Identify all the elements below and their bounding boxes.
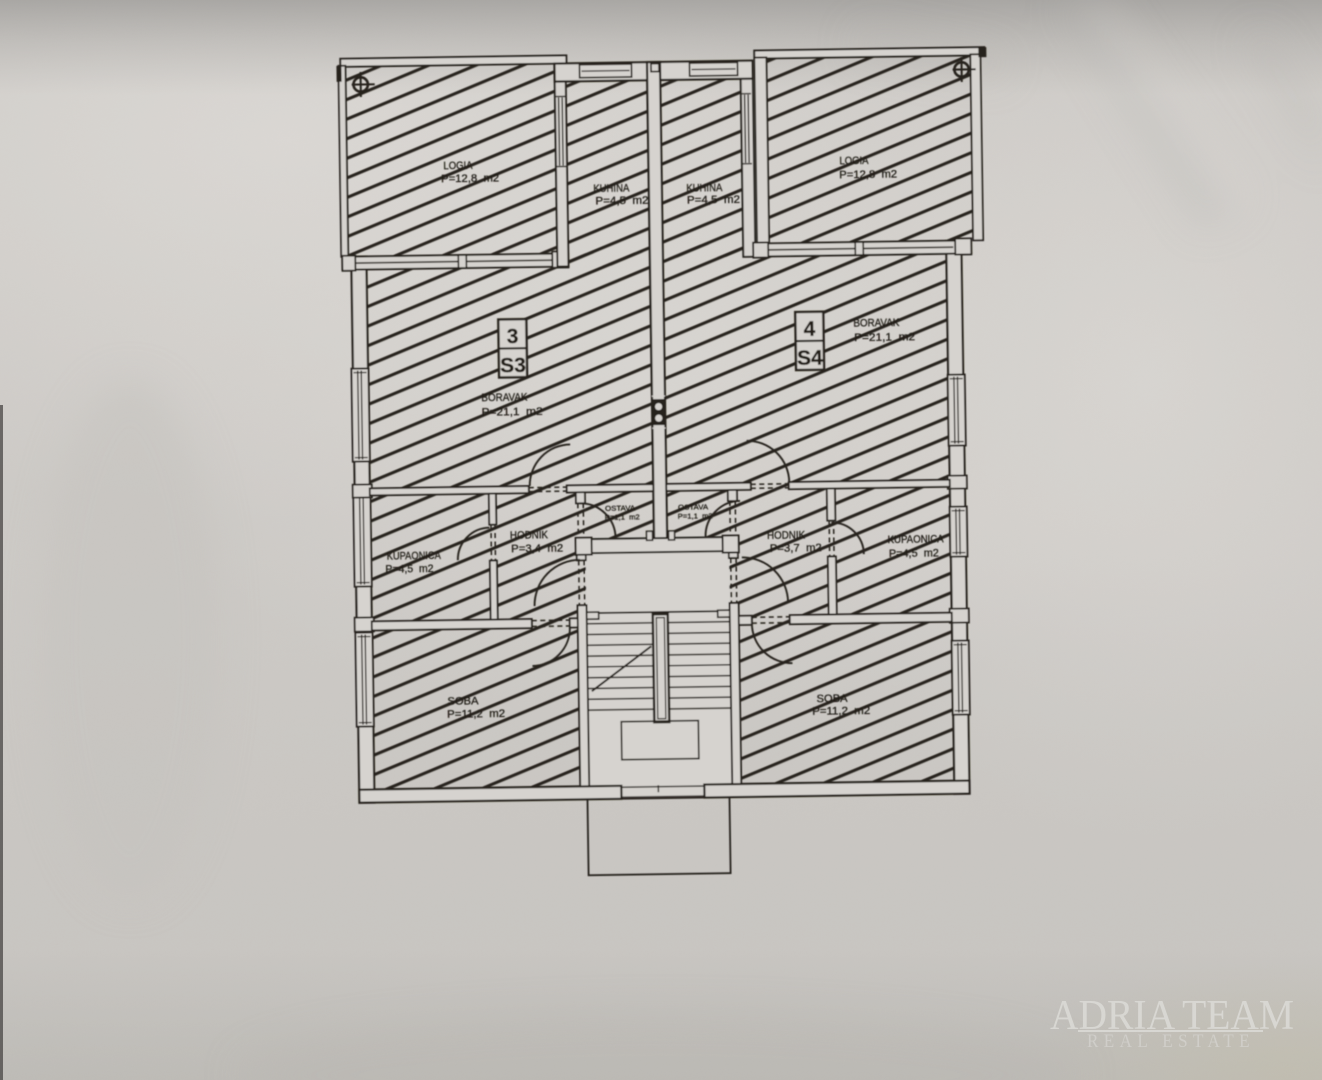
svg-text:KUPAONICA: KUPAONICA xyxy=(387,550,442,563)
svg-text:LOGIA: LOGIA xyxy=(443,160,473,172)
svg-text:P=1,1 m2: P=1,1 m2 xyxy=(605,512,640,522)
svg-text:OSTAVA: OSTAVA xyxy=(605,503,635,512)
svg-text:P=4,5 m2: P=4,5 m2 xyxy=(687,194,740,207)
svg-text:REAL ESTATE: REAL ESTATE xyxy=(1087,1031,1255,1052)
svg-text:P=12,8 m2: P=12,8 m2 xyxy=(839,168,897,181)
svg-text:BORAVAK: BORAVAK xyxy=(853,317,900,330)
svg-text:SOBA: SOBA xyxy=(816,693,848,705)
svg-text:P=1,1 m2: P=1,1 m2 xyxy=(678,511,713,521)
svg-text:P=4,5 m2: P=4,5 m2 xyxy=(595,195,648,208)
svg-text:KUPAONICA: KUPAONICA xyxy=(888,533,945,546)
svg-text:P=12,8 m2: P=12,8 m2 xyxy=(441,172,499,185)
svg-text:P=11,2 m2: P=11,2 m2 xyxy=(447,708,505,721)
svg-text:KUHINA: KUHINA xyxy=(686,182,723,195)
svg-text:S4: S4 xyxy=(797,347,823,370)
svg-text:S3: S3 xyxy=(500,354,526,377)
svg-text:3: 3 xyxy=(507,325,519,348)
svg-text:P=11,2 m2: P=11,2 m2 xyxy=(812,705,870,718)
svg-text:P=4,5 m2: P=4,5 m2 xyxy=(385,563,433,576)
svg-text:HODNIK: HODNIK xyxy=(767,529,806,542)
svg-text:P=21,1 m2: P=21,1 m2 xyxy=(854,331,915,344)
svg-text:P=21,1 m2: P=21,1 m2 xyxy=(482,406,543,419)
svg-text:LOGIA: LOGIA xyxy=(839,155,869,167)
svg-text:P=3,4 m2: P=3,4 m2 xyxy=(511,543,563,556)
svg-text:SOBA: SOBA xyxy=(447,695,479,707)
svg-text:4: 4 xyxy=(803,318,815,341)
svg-text:OSTAVA: OSTAVA xyxy=(678,502,708,511)
svg-text:KUHINA: KUHINA xyxy=(593,182,630,195)
svg-text:HODNIK: HODNIK xyxy=(510,529,549,542)
svg-text:P=3,7 m2: P=3,7 m2 xyxy=(770,542,822,555)
svg-text:P=4,5 m2: P=4,5 m2 xyxy=(889,547,939,560)
svg-text:BORAVAK: BORAVAK xyxy=(481,392,528,405)
